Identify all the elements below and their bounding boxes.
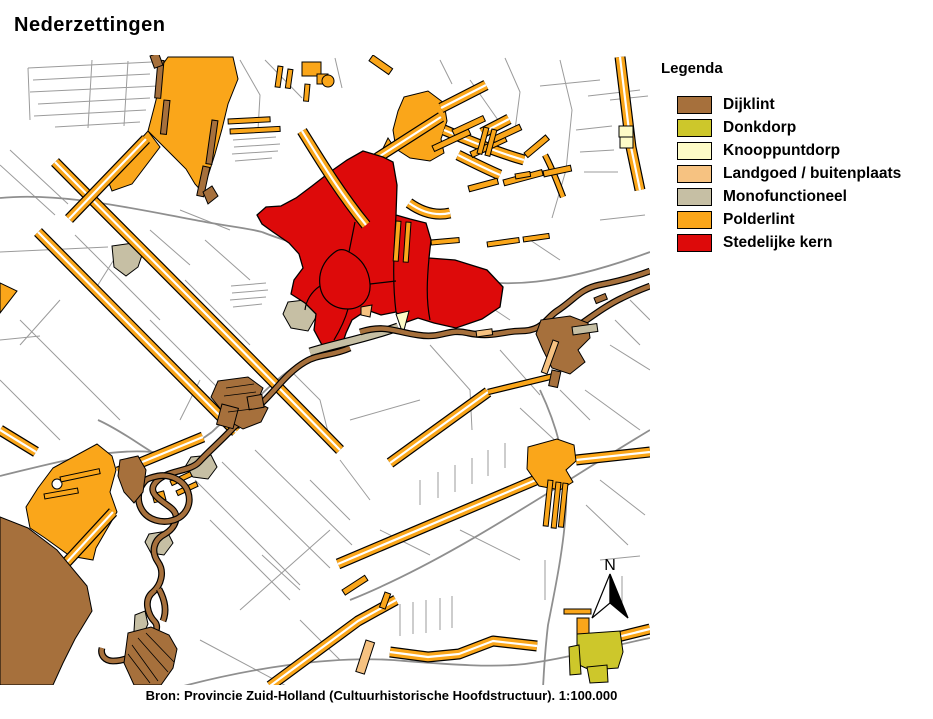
legend-swatch-stedelijke-kern	[677, 234, 712, 252]
legend-swatch-polderlint	[677, 211, 712, 229]
legend-title: Legenda	[661, 60, 931, 77]
legend-label-donkdorp: Donkdorp	[723, 119, 796, 137]
legend-row-donkdorp: Donkdorp	[661, 116, 931, 139]
map-canvas: N	[0, 55, 650, 685]
north-label: N	[604, 557, 616, 574]
legend-row-stedelijke-kern: Stedelijke kern	[661, 231, 931, 254]
legend-label-stedelijke-kern: Stedelijke kern	[723, 234, 832, 252]
north-arrow: N	[592, 557, 628, 618]
legend-swatch-monofunctioneel	[677, 188, 712, 206]
legend-label-polderlint: Polderlint	[723, 211, 794, 229]
legend-row-polderlint: Polderlint	[661, 208, 931, 231]
legend-label-monofunctioneel: Monofunctioneel	[723, 188, 847, 206]
legend-label-landgoed: Landgoed / buitenplaats	[723, 165, 901, 183]
legend-row-landgoed: Landgoed / buitenplaats	[661, 162, 931, 185]
legend-row-knooppuntdorp: Knooppuntdorp	[661, 139, 931, 162]
legend-swatch-landgoed	[677, 165, 712, 183]
page-title: Nederzettingen	[14, 14, 165, 37]
legend-swatch-knooppuntdorp	[677, 142, 712, 160]
legend-label-dijklint: Dijklint	[723, 96, 775, 114]
source-caption: Bron: Provincie Zuid-Holland (Cultuurhis…	[0, 688, 763, 703]
map-layer-dijklint	[0, 55, 650, 685]
legend-row-dijklint: Dijklint	[661, 93, 931, 116]
legend-swatch-donkdorp	[677, 119, 712, 137]
legend-row-monofunctioneel: Monofunctioneel	[661, 185, 931, 208]
map-layer-small-features	[356, 126, 633, 674]
legend-label-knooppuntdorp: Knooppuntdorp	[723, 142, 840, 160]
map-layer-donkdorp	[569, 631, 623, 683]
legend: Legenda Dijklint Donkdorp Knooppuntdorp …	[661, 60, 931, 254]
legend-swatch-dijklint	[677, 96, 712, 114]
